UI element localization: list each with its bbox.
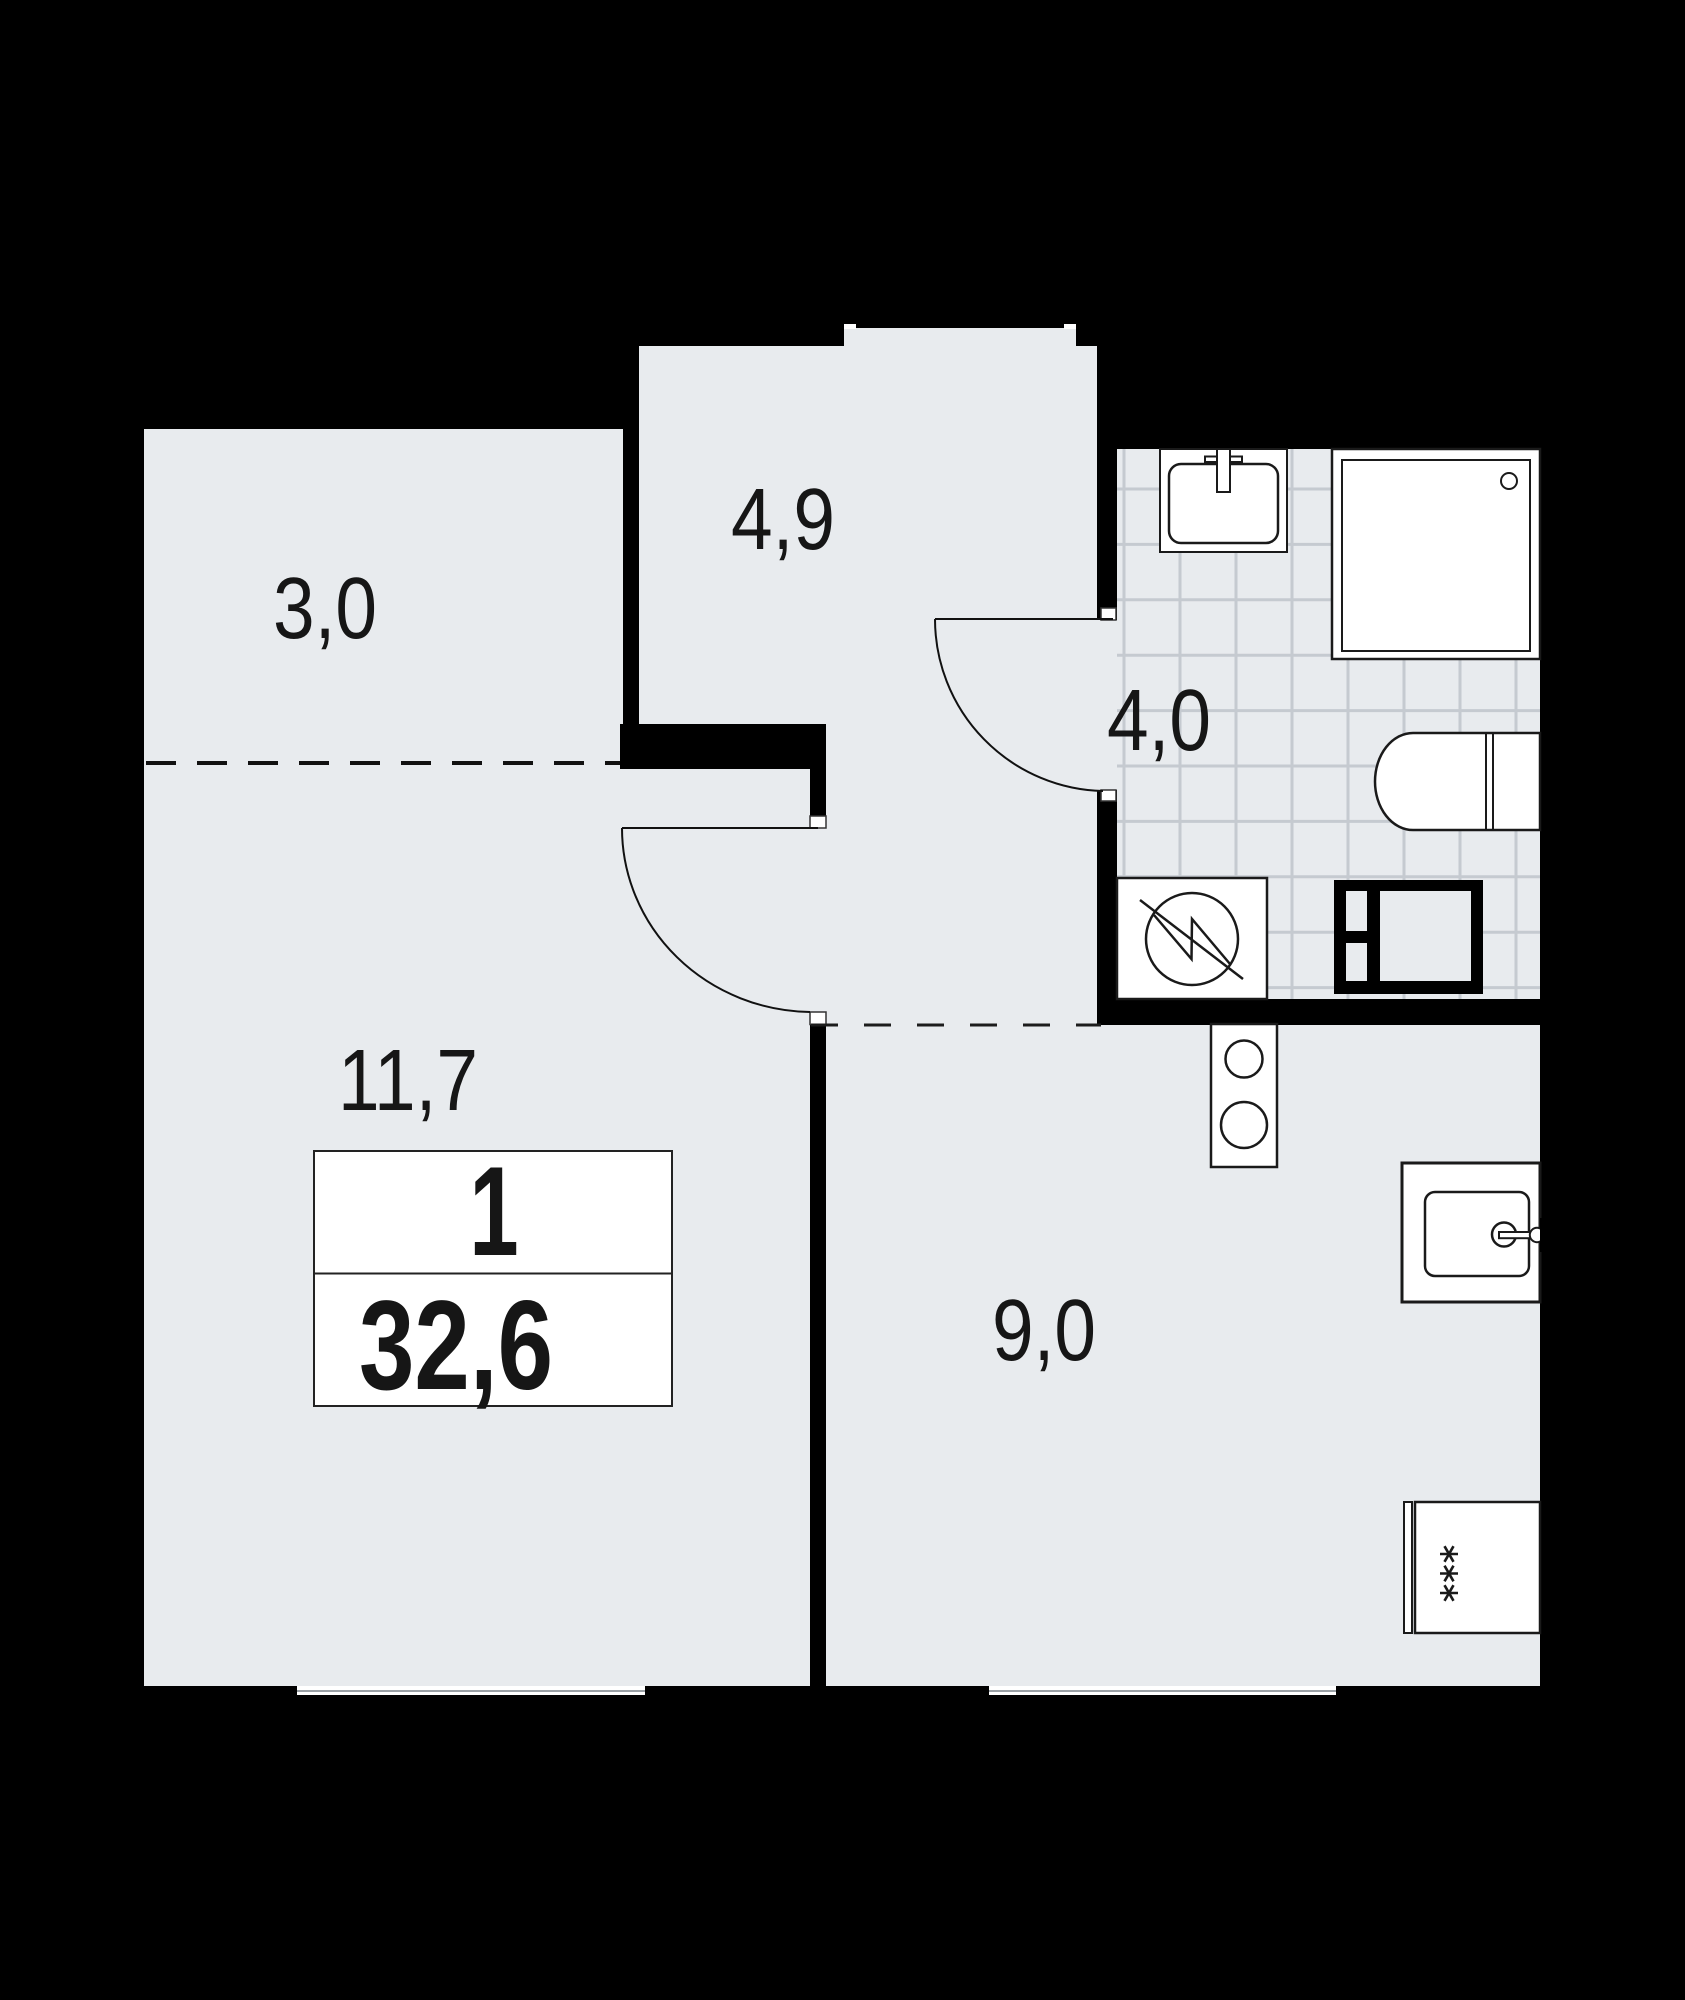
svg-text:4,9: 4,9 xyxy=(731,472,835,569)
svg-text:3,0: 3,0 xyxy=(273,561,377,658)
svg-text:9,0: 9,0 xyxy=(992,1283,1096,1380)
svg-text:11,7: 11,7 xyxy=(338,1033,478,1130)
svg-text:4,0: 4,0 xyxy=(1107,673,1211,770)
svg-text:32,6: 32,6 xyxy=(359,1276,553,1417)
svg-text:1: 1 xyxy=(469,1141,518,1282)
